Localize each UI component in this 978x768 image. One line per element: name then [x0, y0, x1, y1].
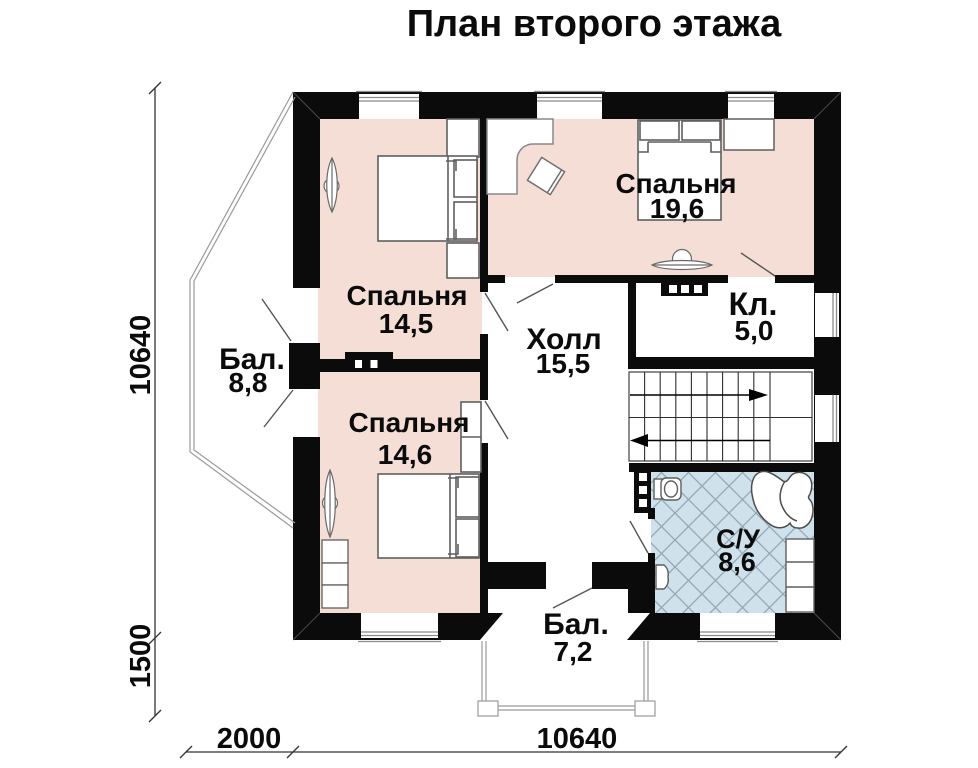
svg-text:7,2: 7,2: [554, 636, 593, 667]
svg-text:Спальня: Спальня: [347, 280, 468, 311]
svg-text:8,6: 8,6: [718, 547, 756, 577]
svg-text:15,5: 15,5: [536, 348, 591, 379]
svg-text:1500: 1500: [125, 624, 157, 689]
svg-text:2000: 2000: [217, 723, 282, 755]
svg-text:10640: 10640: [125, 315, 157, 396]
svg-text:14,6: 14,6: [378, 439, 433, 470]
svg-text:5,0: 5,0: [735, 315, 774, 346]
svg-text:19,6: 19,6: [650, 193, 705, 224]
svg-text:14,5: 14,5: [379, 308, 434, 339]
svg-text:8,8: 8,8: [229, 367, 268, 398]
svg-text:Спальня: Спальня: [349, 407, 470, 438]
svg-text:План второго этажа: План второго этажа: [407, 3, 782, 45]
svg-text:10640: 10640: [537, 723, 618, 755]
